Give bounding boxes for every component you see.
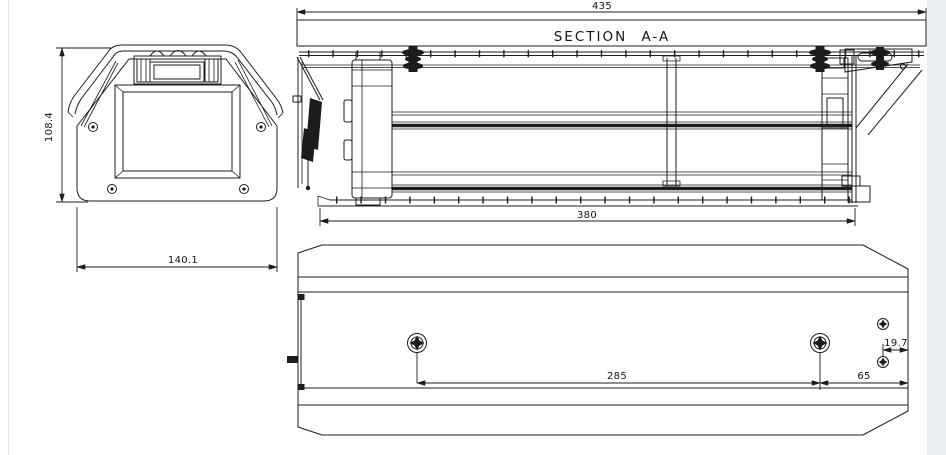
housing-front-face bbox=[77, 59, 277, 201]
front-window bbox=[115, 85, 240, 178]
screw-icon bbox=[108, 185, 117, 194]
dim-section-inner: 380 bbox=[320, 208, 855, 226]
dim-front-width-label: 140.1 bbox=[168, 255, 198, 266]
dome-screw-icon bbox=[150, 51, 164, 56]
bottom-view: 285 65 19.7 bbox=[287, 245, 908, 435]
dim-section-inner-label: 380 bbox=[577, 210, 597, 221]
dome-screw-icon bbox=[192, 51, 206, 56]
bottom-rail bbox=[318, 196, 858, 206]
dim-front-width: 140.1 bbox=[77, 207, 277, 272]
top-rail bbox=[299, 52, 924, 68]
screw-icon bbox=[257, 123, 266, 132]
section-title: SECTION A-A bbox=[554, 29, 671, 45]
internal-rails bbox=[392, 112, 852, 192]
small-hole-icon bbox=[878, 357, 889, 368]
left-frame-column bbox=[344, 52, 392, 205]
screw-icon bbox=[89, 123, 98, 132]
bottom-outline bbox=[298, 245, 908, 435]
dim-edge-offset-label: 65 bbox=[857, 371, 870, 382]
left-latch-assembly bbox=[293, 57, 323, 190]
mount-hole-icon bbox=[811, 334, 830, 353]
mount-hole-icon bbox=[408, 334, 427, 353]
screw-icon bbox=[240, 185, 249, 194]
dim-edge-offset: 65 bbox=[820, 371, 908, 383]
technical-drawing: 108.4 140.1 435 SECTION A-A bbox=[0, 0, 946, 455]
top-handle-assembly bbox=[128, 51, 228, 86]
right-wall-assembly bbox=[822, 49, 922, 203]
dim-section-overall-label: 435 bbox=[592, 1, 612, 12]
front-view: 108.4 140.1 bbox=[44, 45, 283, 272]
mid-strut bbox=[663, 56, 680, 186]
cad-drawing-canvas: 108.4 140.1 435 SECTION A-A bbox=[0, 0, 946, 455]
sunshield-outline bbox=[68, 45, 283, 127]
small-hole-icon bbox=[878, 319, 889, 330]
dim-front-height-label: 108.4 bbox=[44, 112, 55, 142]
section-view: 435 SECTION A-A bbox=[293, 1, 926, 226]
dim-hole-spacing-label: 285 bbox=[607, 371, 627, 382]
left-mount-bracket bbox=[287, 294, 305, 390]
dim-hole-spacing: 285 bbox=[417, 353, 820, 390]
dim-side-offset: 19.7 bbox=[883, 338, 908, 357]
rail-bolt-icon bbox=[402, 46, 424, 72]
dim-side-offset-label: 19.7 bbox=[884, 338, 907, 349]
